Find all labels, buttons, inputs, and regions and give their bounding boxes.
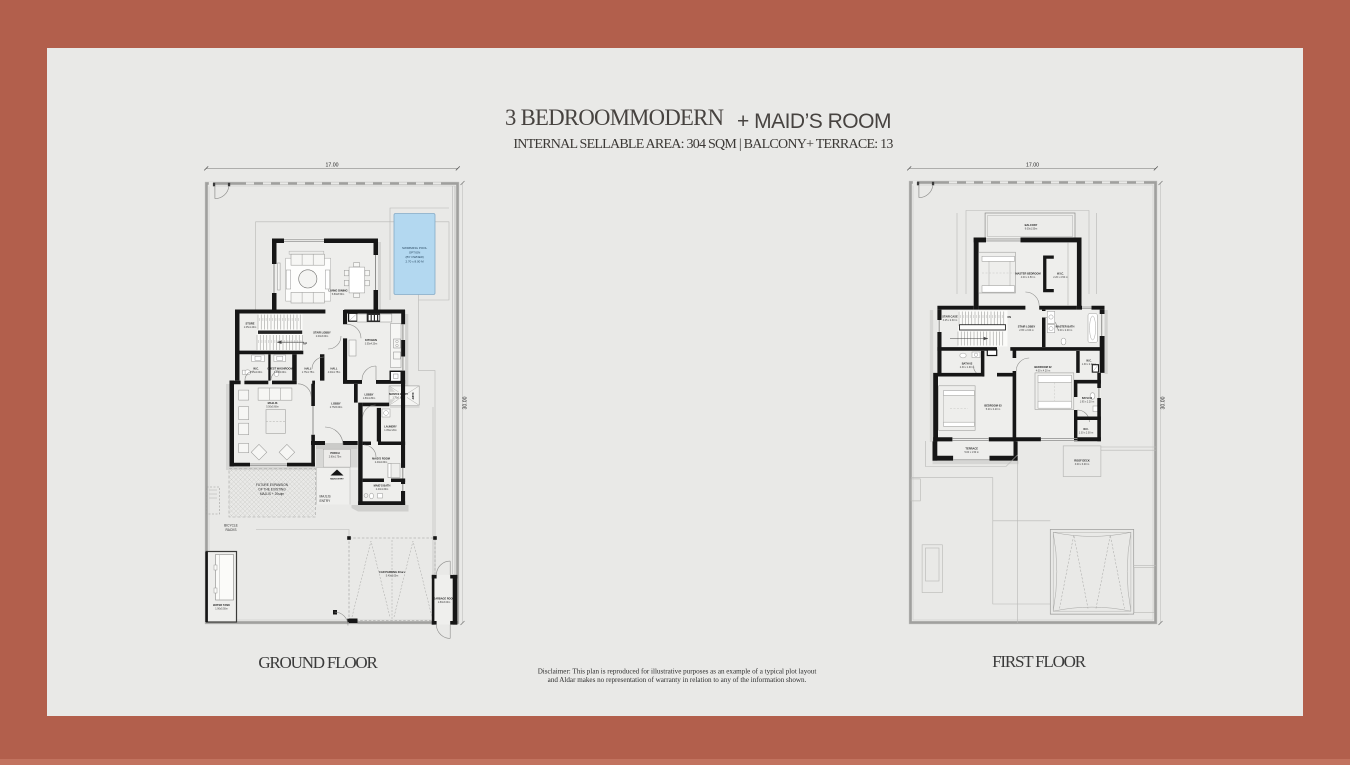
svg-text:BEDROOM 03: BEDROOM 03 — [984, 404, 1002, 408]
svg-text:FIRST FLOOR: FIRST FLOOR — [992, 652, 1087, 671]
svg-text:ENTRY: ENTRY — [320, 499, 332, 503]
svg-text:5.20 x 4.20 m: 5.20 x 4.20 m — [986, 408, 1001, 411]
svg-text:17.00: 17.00 — [326, 162, 339, 168]
svg-text:30.00: 30.00 — [463, 396, 469, 409]
svg-text:4.25 x 2.30 m: 4.25 x 2.30 m — [943, 319, 958, 322]
svg-text:LIVING DINING: LIVING DINING — [328, 289, 347, 293]
svg-text:17.00: 17.00 — [1026, 162, 1039, 168]
svg-text:STAIR LOBBY: STAIR LOBBY — [313, 331, 331, 335]
svg-text:GROUND FLOOR: GROUND FLOOR — [258, 653, 378, 672]
svg-text:2.65 x 2.00 m: 2.65 x 2.00 m — [1019, 329, 1034, 332]
svg-text:MAJLIS: MAJLIS — [268, 401, 278, 405]
svg-text:OF THE EXISTING: OF THE EXISTING — [258, 488, 286, 492]
svg-text:1.05x2.20m: 1.05x2.20m — [384, 429, 397, 432]
svg-text:1.80x3.00m: 1.80x3.00m — [438, 601, 451, 604]
svg-text:MASTER BEDROOM: MASTER BEDROOM — [1015, 272, 1040, 276]
svg-text:CAR PARKING 2Cars: CAR PARKING 2Cars — [379, 570, 406, 574]
svg-text:2.40x1.60m: 2.40x1.60m — [376, 488, 389, 491]
svg-text:KITCHEN: KITCHEN — [365, 338, 377, 342]
svg-text:4.00x1.75m: 4.00x1.75m — [328, 371, 341, 374]
svg-text:INTERNAL SELLABLE AREA: 304 SQ: INTERNAL SELLABLE AREA: 304 SQM | BALCON… — [513, 137, 893, 152]
svg-text:BATH 02: BATH 02 — [962, 362, 973, 366]
svg-text:1.90x5.50m: 1.90x5.50m — [215, 607, 228, 610]
svg-text:MAIN ENTRY: MAIN ENTRY — [330, 478, 344, 481]
svg-text:1.30 x 2.00 m: 1.30 x 2.00 m — [1079, 432, 1094, 435]
svg-text:and Aldar makes no representat: and Aldar makes no representation of war… — [548, 676, 807, 684]
svg-text:Disclaimer: This plan is repro: Disclaimer: This plan is reproduced for … — [538, 668, 817, 676]
svg-text:2.00x3.00m: 2.00x3.00m — [316, 335, 329, 338]
svg-text:2.30 x 1.90 m: 2.30 x 1.90 m — [960, 366, 975, 369]
svg-text:1.75x1.75m: 1.75x1.75m — [302, 371, 315, 374]
svg-text:(BY OWNER): (BY OWNER) — [405, 255, 423, 259]
svg-text:SWIMMING POOL: SWIMMING POOL — [402, 246, 427, 250]
svg-text:MASTER BATH: MASTER BATH — [1056, 325, 1075, 329]
svg-text:2.70 x 8.00 M: 2.70 x 8.00 M — [406, 260, 425, 264]
svg-text:FUTURE EXPANSION: FUTURE EXPANSION — [256, 483, 289, 487]
svg-text:4.00 x 4.20 m: 4.00 x 4.20 m — [1036, 370, 1051, 373]
svg-text:3.00 x 3.00 m: 3.00 x 3.00 m — [1075, 463, 1090, 466]
svg-text:LOBBY: LOBBY — [331, 402, 341, 406]
svg-text:1.95 x 2.20 m: 1.95 x 2.20 m — [1080, 401, 1095, 404]
svg-text:STAIR CASE: STAIR CASE — [942, 315, 958, 319]
svg-text:UP: UP — [303, 342, 307, 346]
svg-text:STAIR LOBBY: STAIR LOBBY — [1018, 325, 1036, 329]
svg-text:2.75x5.00m: 2.75x5.00m — [330, 406, 343, 409]
svg-text:2.20 x 4.50 m: 2.20 x 4.50 m — [1053, 276, 1068, 279]
svg-text:DN: DN — [1008, 316, 1012, 319]
svg-text:9.00x1.50m: 9.00x1.50m — [1025, 228, 1038, 231]
svg-text:MAJLIS + 20sqm: MAJLIS + 20sqm — [260, 492, 285, 496]
svg-text:3 BEDROOMMODERN: 3 BEDROOMMODERN — [505, 105, 724, 130]
svg-text:TERRACE: TERRACE — [965, 447, 978, 451]
svg-text:STORE: STORE — [246, 322, 255, 326]
svg-text:W.I.C.: W.I.C. — [1057, 272, 1064, 276]
svg-text:ROOF DECK: ROOF DECK — [1074, 459, 1090, 463]
svg-text:BALCONY: BALCONY — [1025, 223, 1038, 227]
svg-text:3.00 x 2.00 m: 3.00 x 2.00 m — [1058, 329, 1073, 332]
svg-text:GARBAGE ROOM: GARBAGE ROOM — [433, 598, 454, 601]
svg-text:5.00 x 1.50 m: 5.00 x 1.50 m — [964, 451, 979, 454]
svg-text:BICYCLE: BICYCLE — [224, 524, 238, 528]
svg-text:1.80x1.80m: 1.80x1.80m — [363, 397, 376, 400]
svg-text:5.40x5.00m: 5.40x5.00m — [386, 575, 399, 578]
svg-text:5.80x8.50m: 5.80x8.50m — [332, 293, 345, 296]
svg-text:OPTION: OPTION — [409, 251, 421, 255]
svg-text:RACKS: RACKS — [226, 528, 237, 532]
svg-text:BEDROOM 02: BEDROOM 02 — [1034, 365, 1052, 369]
svg-text:SERVICE ENTRY: SERVICE ENTRY — [389, 393, 409, 396]
svg-text:2.80x1.75m: 2.80x1.75m — [329, 455, 342, 458]
svg-text:1.05x1.20m: 1.05x1.20m — [244, 326, 257, 329]
svg-text:3.55x4.20m: 3.55x4.20m — [365, 343, 378, 346]
svg-text:RAMP: RAMP — [411, 393, 414, 400]
svg-text:2.40x2.60m: 2.40x2.60m — [375, 461, 388, 464]
svg-text:5.50x5.60m: 5.50x5.60m — [266, 406, 279, 409]
svg-text:30.00: 30.00 — [1161, 396, 1167, 409]
svg-text:MAJLIS: MAJLIS — [320, 495, 331, 499]
svg-text:4.00 x 4.50 m: 4.00 x 4.50 m — [1021, 276, 1036, 279]
svg-text:+ MAID’S ROOM: + MAID’S ROOM — [737, 110, 891, 133]
